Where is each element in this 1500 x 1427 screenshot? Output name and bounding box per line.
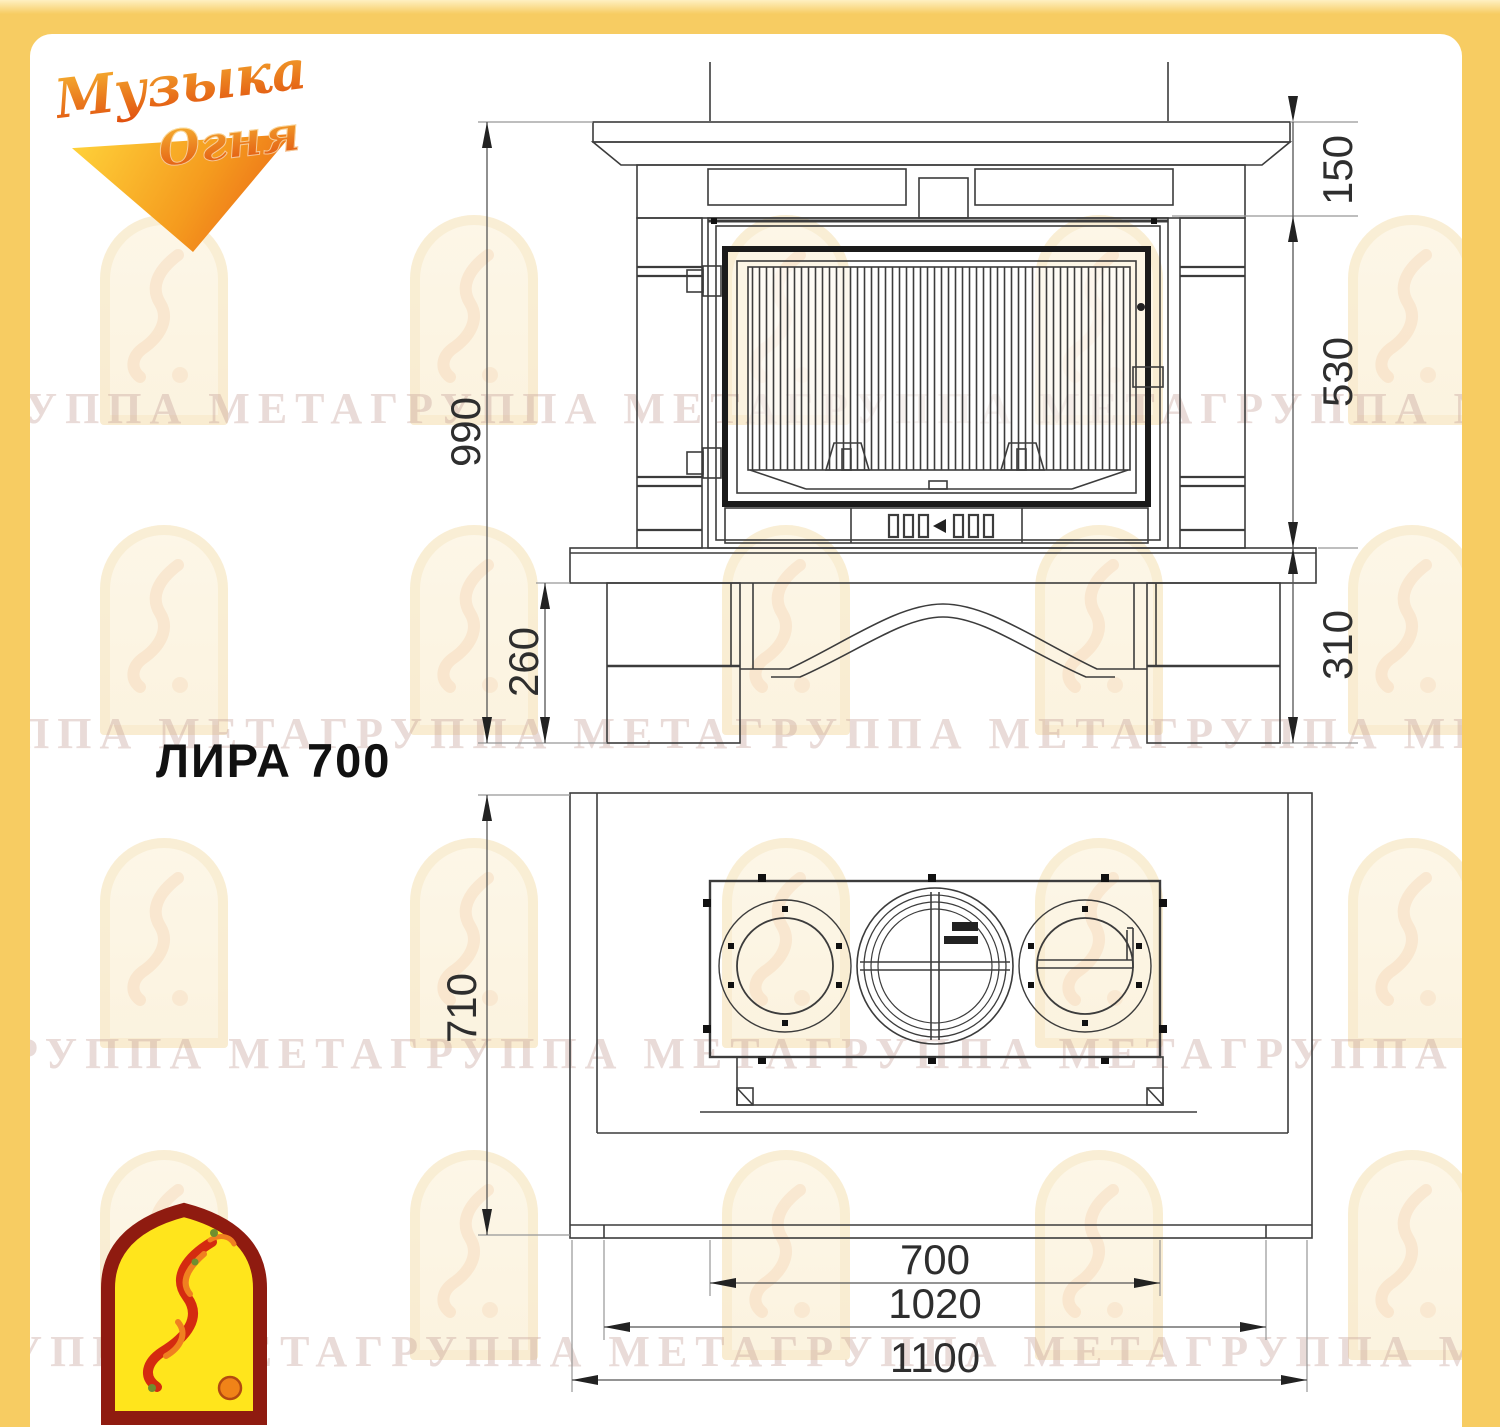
plan-outer-outline bbox=[570, 793, 1312, 1238]
frame-top-highlight bbox=[0, 0, 1500, 14]
plan-front-lip bbox=[700, 1057, 1197, 1112]
base-leg-right bbox=[1147, 583, 1280, 743]
plan-dimensions: 710 700 1020 1100 bbox=[438, 795, 1307, 1392]
dim-body-width: 1020 bbox=[888, 1280, 981, 1327]
vent-arrow-mark bbox=[933, 519, 946, 533]
door-louvres bbox=[748, 267, 1130, 470]
sheet-canvas: ГРУППА МЕТАГРУППА МЕТАГРУППА МЕТАГРУППА … bbox=[30, 34, 1462, 1427]
firebox-door bbox=[687, 249, 1163, 504]
front-elevation-drawing bbox=[570, 62, 1316, 743]
flue-collar-center bbox=[857, 888, 1013, 1044]
chimney-lines bbox=[710, 62, 1168, 121]
pilaster-left bbox=[637, 218, 702, 548]
dim-firebox-width: 700 bbox=[900, 1236, 970, 1283]
hearth-shelf bbox=[570, 548, 1316, 583]
flue-label-mark bbox=[944, 922, 978, 944]
dim-base-height: 260 bbox=[500, 627, 547, 697]
emblem-dot bbox=[219, 1377, 241, 1399]
drawing-sheet: ГРУППА МЕТАГРУППА МЕТАГРУППА МЕТАГРУППА … bbox=[30, 34, 1462, 1427]
air-vent-strip bbox=[725, 508, 1148, 543]
pilaster-right bbox=[1180, 218, 1245, 548]
plan-wall-lines bbox=[570, 793, 1312, 1238]
mantel-shelf bbox=[593, 122, 1290, 165]
meta-arch-emblem bbox=[92, 1200, 277, 1425]
frieze-band bbox=[637, 165, 1245, 218]
base-leg-left bbox=[607, 583, 740, 743]
dim-firebox-height: 530 bbox=[1314, 337, 1361, 407]
dim-depth: 710 bbox=[438, 973, 485, 1043]
model-title: ЛИРА 700 bbox=[156, 733, 391, 788]
dim-mantel-height: 150 bbox=[1314, 135, 1361, 205]
base-arch-panel bbox=[740, 583, 1147, 677]
dim-overall-width: 1100 bbox=[890, 1334, 980, 1381]
vent-collar-left bbox=[719, 900, 851, 1032]
dim-overall-height: 990 bbox=[442, 397, 489, 467]
brand-logo: Музыка Огня bbox=[52, 46, 332, 226]
vent-collar-right bbox=[1019, 900, 1151, 1032]
plan-view-drawing bbox=[570, 793, 1312, 1238]
dim-hearth-to-floor: 310 bbox=[1314, 610, 1361, 680]
